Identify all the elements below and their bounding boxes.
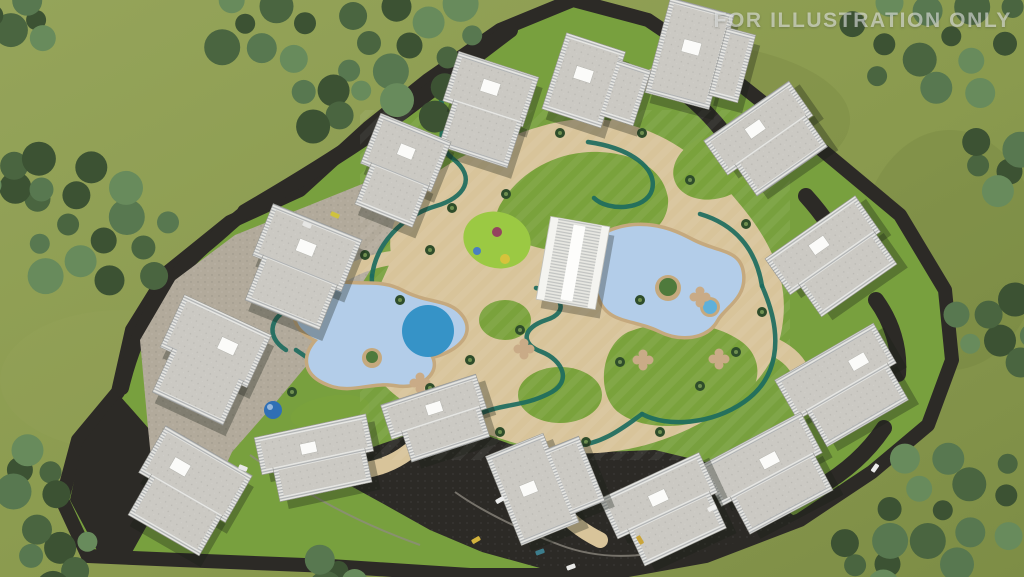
planter-lobe: [520, 339, 529, 348]
palm-center: [504, 192, 508, 196]
tree: [77, 532, 97, 552]
tree: [462, 25, 482, 45]
tree: [380, 83, 414, 117]
palm-center: [498, 430, 502, 434]
tree: [247, 33, 277, 63]
palm-center: [760, 310, 764, 314]
tree: [65, 245, 97, 277]
tree: [975, 301, 1003, 329]
tree: [993, 32, 1017, 56]
tree: [140, 262, 168, 290]
tree: [30, 178, 54, 202]
tree: [30, 234, 50, 254]
aerial-rendering-residential-compound: FOR ILLUSTRATION ONLY: [0, 0, 1024, 577]
tree: [944, 302, 970, 328]
tree: [967, 154, 989, 176]
palm-center: [558, 131, 562, 135]
palm-tree: [757, 307, 767, 317]
planter-lobe: [715, 349, 724, 358]
tree: [28, 258, 64, 294]
palm-center: [744, 222, 748, 226]
tree: [844, 554, 866, 576]
tree: [872, 523, 908, 559]
tree: [933, 500, 953, 520]
tree: [890, 444, 920, 474]
tree: [982, 175, 1014, 207]
palm-center: [640, 131, 644, 135]
planter-lobe: [639, 362, 648, 371]
planter-lobe: [416, 373, 425, 382]
tree: [91, 228, 117, 254]
tree: [305, 545, 335, 575]
watermark-text: FOR ILLUSTRATION ONLY: [714, 9, 1012, 33]
palm-tree: [731, 347, 741, 357]
pool-island-plants: [366, 351, 378, 363]
tree: [75, 151, 107, 183]
palm-center: [658, 430, 662, 434]
tree: [873, 33, 895, 55]
palm-tree: [515, 325, 525, 335]
palm-center: [688, 178, 692, 182]
planter-lobe: [639, 350, 648, 359]
tree: [878, 497, 902, 521]
tree: [952, 467, 986, 501]
tree: [910, 523, 946, 559]
tree: [339, 2, 367, 30]
palm-tree: [555, 128, 565, 138]
tree: [109, 171, 143, 205]
palm-center: [428, 248, 432, 252]
palm-tree: [395, 295, 405, 305]
tree: [962, 128, 990, 156]
palm-tree: [655, 427, 665, 437]
tree: [157, 211, 179, 233]
dome-highlight: [267, 404, 273, 410]
tree: [12, 434, 44, 466]
palm-center: [468, 358, 472, 362]
tree: [318, 75, 350, 107]
planter-lobe: [520, 351, 529, 360]
tree: [357, 31, 381, 55]
tree: [867, 66, 887, 86]
tree: [397, 33, 423, 59]
tree: [235, 14, 255, 34]
palm-tree: [695, 381, 705, 391]
tree: [292, 80, 316, 104]
tree: [204, 29, 240, 65]
tree: [998, 454, 1018, 474]
planter-lobe: [715, 361, 724, 370]
palm-center: [638, 298, 642, 302]
palm-tree: [465, 355, 475, 365]
palm-center: [698, 384, 702, 388]
tree: [62, 181, 90, 209]
tree: [42, 480, 70, 508]
tree: [131, 236, 155, 260]
palm-tree: [287, 387, 297, 397]
tree: [373, 53, 409, 89]
planter-lobe: [696, 287, 705, 296]
tree: [95, 265, 125, 295]
palm-tree: [447, 203, 457, 213]
tree: [955, 517, 985, 547]
tree: [351, 81, 371, 101]
play-equipment: [492, 227, 502, 237]
play-equipment: [500, 254, 510, 264]
pool-island-plants: [659, 278, 677, 296]
tree: [280, 45, 308, 73]
tree: [965, 78, 995, 108]
palm-tree: [685, 175, 695, 185]
tree: [22, 515, 52, 545]
palm-tree: [741, 219, 751, 229]
palm-tree: [635, 295, 645, 305]
palm-center: [290, 390, 294, 394]
palm-tree: [501, 189, 511, 199]
pool-deep-zone: [402, 305, 454, 357]
tree: [960, 334, 980, 354]
tree: [920, 72, 952, 104]
tree: [958, 48, 984, 74]
tree: [40, 461, 62, 483]
tree: [995, 484, 1017, 506]
tree: [57, 214, 79, 236]
tree: [995, 522, 1023, 550]
palm-center: [734, 350, 738, 354]
palm-tree: [615, 357, 625, 367]
tree: [19, 544, 43, 568]
tree: [413, 7, 445, 39]
tree: [903, 43, 937, 77]
tree: [30, 25, 56, 51]
splash-dome: [264, 401, 282, 419]
palm-tree: [425, 245, 435, 255]
palm-center: [518, 328, 522, 332]
tree: [22, 142, 56, 176]
planter-lobe: [696, 299, 705, 308]
scene-canvas: [0, 0, 1024, 577]
tree: [296, 110, 330, 144]
play-equipment: [473, 247, 481, 255]
tree: [294, 12, 316, 34]
tree: [831, 529, 859, 557]
round-kids-pool: [703, 300, 717, 314]
tree: [932, 443, 964, 475]
palm-center: [398, 298, 402, 302]
tree: [906, 476, 932, 502]
palm-center: [450, 206, 454, 210]
palm-center: [618, 360, 622, 364]
